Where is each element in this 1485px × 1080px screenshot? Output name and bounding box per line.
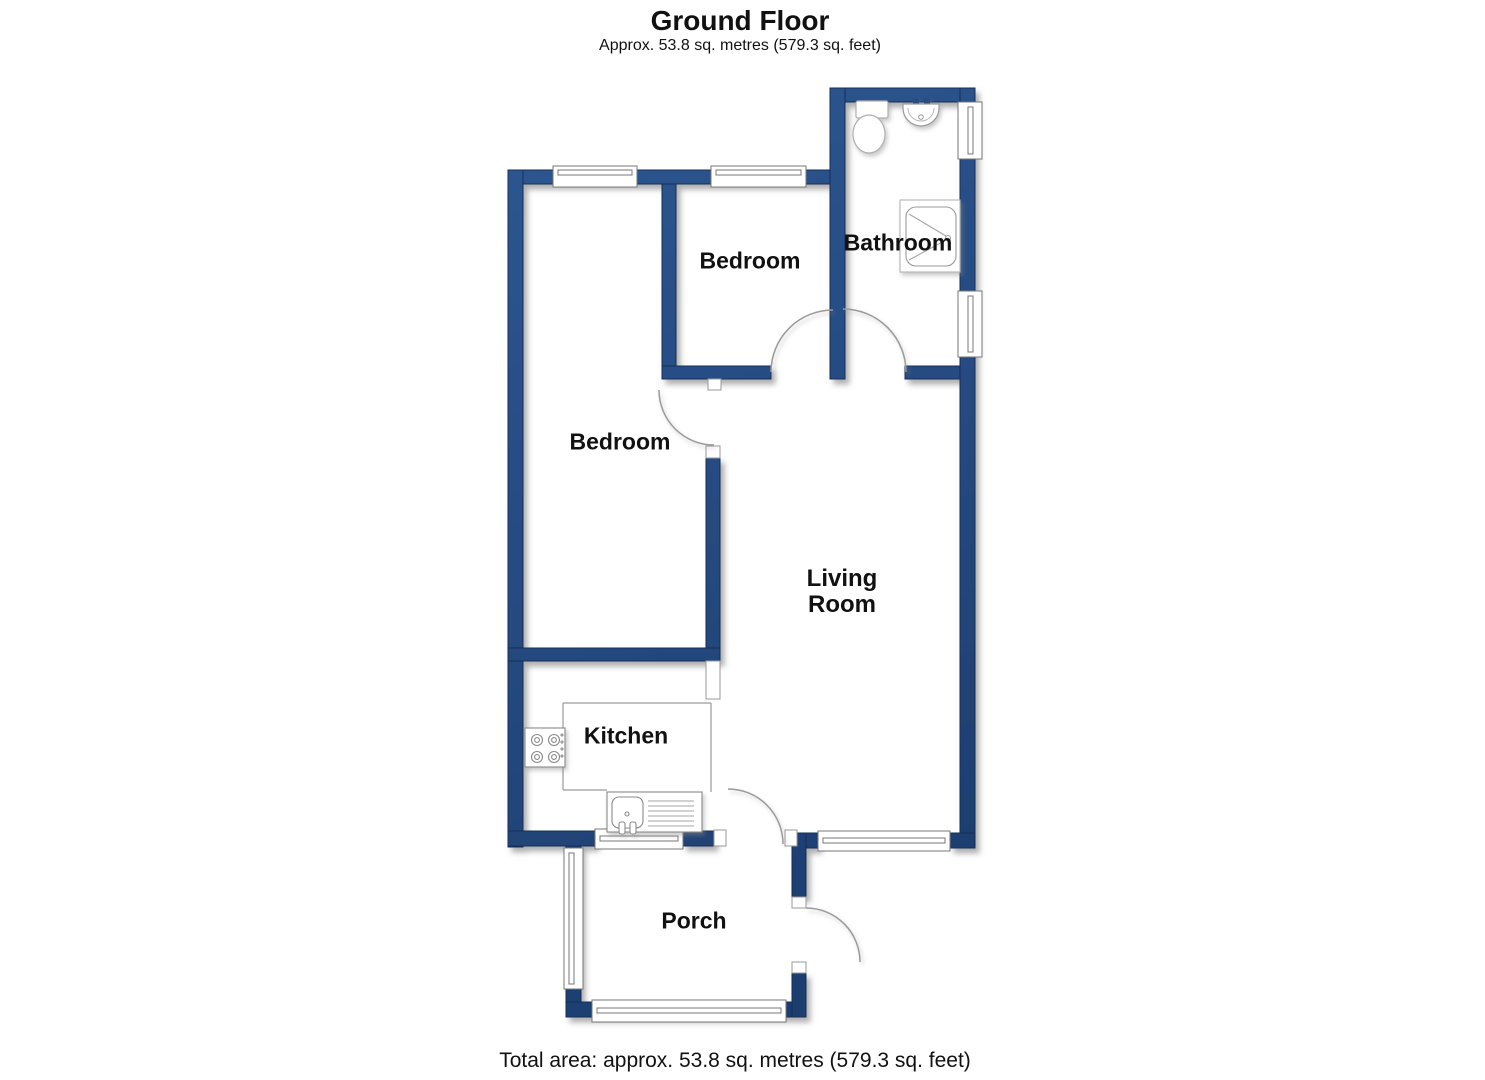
window-living-room	[818, 831, 950, 851]
door-arc-living-room	[728, 789, 783, 844]
room-label-porch: Porch	[661, 908, 726, 935]
wall-hall	[662, 366, 771, 379]
door-arc-front-door	[806, 908, 860, 962]
room-label-bathroom: Bathroom	[844, 230, 953, 257]
door-jambs	[706, 379, 806, 973]
jamb-front-door-bottom	[792, 962, 806, 973]
room-label-bedroom-left: Bedroom	[570, 429, 671, 456]
wall-kitchen-bottom-a	[508, 831, 595, 846]
jamb-living-door-left	[714, 830, 726, 846]
wall-bedroom-top-left	[662, 184, 676, 379]
window-porch-left	[564, 848, 583, 989]
room-label-living-room: Living Room	[807, 566, 878, 618]
sink-unit-icon	[607, 792, 702, 834]
room-label-living-room-line2: Room	[807, 592, 878, 618]
hob-icon	[525, 728, 565, 767]
opening-kitchen-living	[706, 661, 720, 699]
jamb-living-door-right	[785, 830, 797, 846]
toilet-icon	[853, 101, 888, 153]
wall-right	[960, 88, 975, 847]
jamb-bedroom-left-top	[708, 379, 721, 390]
floor-plan-svg	[0, 0, 1485, 1080]
wall-kitchen-bottom-b	[683, 831, 714, 846]
window-porch-bottom	[592, 1000, 786, 1022]
room-label-kitchen: Kitchen	[584, 723, 668, 750]
ground-floor-plan-page: Ground Floor Approx. 53.8 sq. metres (57…	[0, 0, 1485, 1080]
wall-bathroom-top	[830, 88, 975, 102]
jamb-front-door-top	[792, 897, 806, 908]
room-label-living-room-line1: Living	[807, 566, 878, 592]
room-label-bedroom-top: Bedroom	[700, 248, 801, 275]
jamb-bedroom-left-bottom	[706, 446, 720, 458]
window-bathroom-upper	[958, 102, 982, 159]
wall-left	[508, 170, 523, 847]
window-bedroom-top	[711, 166, 806, 187]
door-arcs	[659, 309, 906, 962]
window-bathroom-lower	[958, 291, 982, 357]
wall-porch-right-lower	[792, 973, 806, 1017]
window-bedroom-left-top	[553, 166, 637, 187]
door-arc-bedroom-top	[771, 310, 833, 372]
door-arc-bathroom	[843, 309, 906, 372]
wall-bathroom-bottom	[905, 366, 960, 379]
wall-bedroom-left-right	[706, 458, 720, 661]
wall-bedroom-left-bottom	[508, 648, 720, 661]
wall-living-bottom-b	[950, 833, 975, 848]
total-area-text: Total area: approx. 53.8 sq. metres (579…	[499, 1049, 971, 1073]
